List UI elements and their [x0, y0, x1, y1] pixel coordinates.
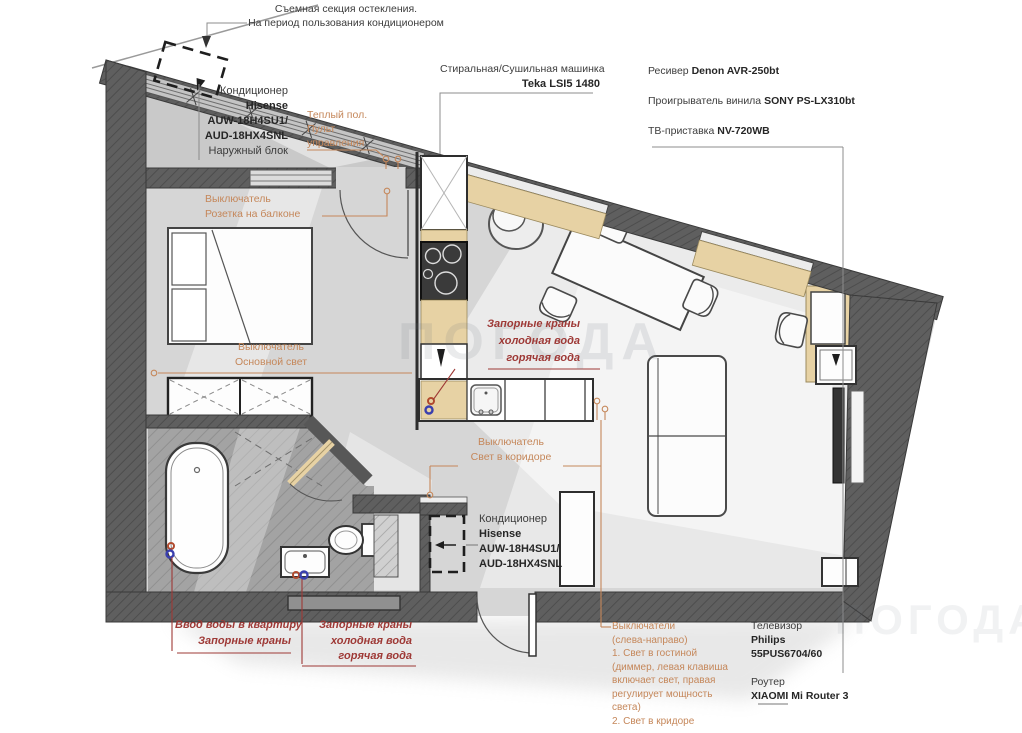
- hall-cabinet-low: [288, 596, 400, 610]
- bathroom-valves-label: Запорные краны холодная вода горячая вод…: [300, 618, 412, 665]
- router-label: Роутер XIAOMI Mi Router 3: [751, 675, 848, 703]
- vinyl-player-label: Проигрыватель винила SONY PS-LX310bt: [648, 94, 855, 109]
- wall-shelf: [851, 391, 864, 483]
- plumbing-shaft: [374, 515, 398, 577]
- ac-outdoor-label: Кондиционер Hisense AUW-18H4SU1/ AUD-18H…: [188, 84, 288, 159]
- switch-block-note: Выключатели (слева-направо) 1. Свет в го…: [612, 620, 728, 728]
- ac-indoor-label: Кондиционер Hisense AUW-18H4SU1/ AUD-18H…: [479, 512, 562, 572]
- kitchen-valves-label: Запорные краны холодная вода горячая вод…: [468, 316, 580, 367]
- bathroom-wall: [146, 415, 310, 428]
- router-box: [822, 558, 858, 586]
- hall-wall: [353, 495, 430, 513]
- glazing-note: Съемная секция остекления. На период пол…: [240, 2, 452, 30]
- wardrobe: [168, 378, 312, 416]
- bathtub: [166, 443, 228, 573]
- floor-plan-page: ПОГОДА ПОГОДА Съемная секция остекления.…: [0, 0, 1022, 733]
- water-inlet-label: Ввод воды в квартиру Запорные краны: [175, 618, 291, 649]
- receiver-label: Ресивер Denon AVR-250bt: [648, 64, 779, 79]
- left-wall: [106, 60, 146, 622]
- tv-screen: [833, 388, 844, 483]
- corridor-light-switch-label: Выключатель Свет в коридоре: [452, 435, 570, 465]
- stove: [421, 242, 467, 300]
- tv-label: Телевизор Philips 55PUS6704/60: [751, 619, 822, 661]
- tv-box-label: ТВ-приставка NV-720WB: [648, 124, 770, 139]
- kitchen-counter: [419, 379, 593, 421]
- sofa: [648, 356, 726, 516]
- kitchen-sink: [471, 385, 501, 415]
- bed: [168, 228, 312, 344]
- desk-chair: [774, 311, 808, 348]
- main-light-switch-label: Выключатель Основной свет: [210, 340, 332, 370]
- balcony-socket-label: Выключатель Розетка на балконе: [205, 192, 300, 222]
- warm-floor-label: Теплый пол. Пульт управления: [307, 108, 367, 150]
- bottom-wall: [535, 592, 876, 622]
- washer-dryer: [421, 156, 467, 230]
- toilet: [329, 524, 376, 556]
- washer-label: Стиральная/Сушильная машинка Teka LSI5 1…: [440, 62, 600, 92]
- hall-wardrobe: [560, 492, 594, 586]
